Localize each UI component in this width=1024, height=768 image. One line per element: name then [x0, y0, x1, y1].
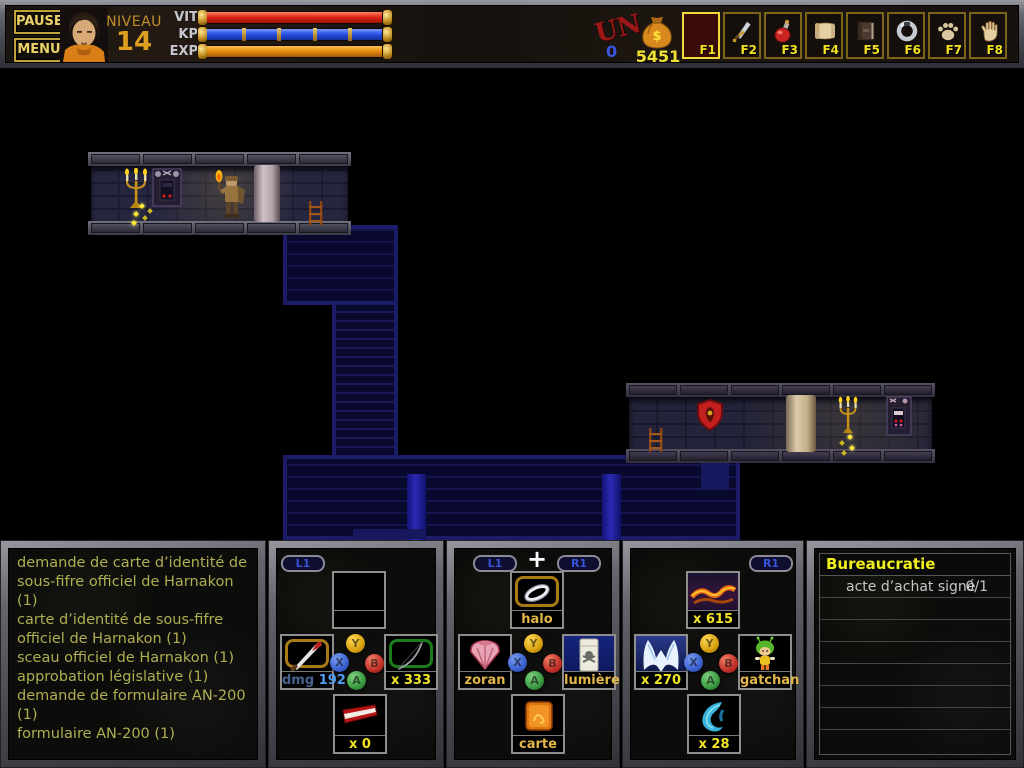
f2-key-label: F2 — [740, 43, 757, 57]
gamepad-cluster: Y X B A — [508, 634, 563, 691]
quest-title: Bureaucratie — [820, 554, 1010, 576]
weapon-slot-left[interactable]: dmg 192 — [280, 634, 334, 690]
f3-key-label: F3 — [781, 43, 798, 57]
quest-entry-empty — [820, 708, 1010, 730]
quick-slot-f8[interactable]: F8 — [969, 12, 1007, 59]
quest-items-panel: demande de carte d’identité de sous-fifr… — [0, 540, 266, 768]
quest-entry-empty — [820, 730, 1010, 752]
weapon-slot-down[interactable]: x 0 — [333, 694, 387, 754]
weapon-panel: L1 dmg 192 — [268, 540, 444, 768]
gamepad-cluster: Y X B A — [684, 634, 739, 691]
spell-name: gatchan — [740, 673, 790, 688]
quest-items-list: demande de carte d’identité de sous-fifr… — [9, 549, 257, 749]
pillar-icon — [254, 165, 280, 222]
lighter-skull-icon — [564, 636, 614, 672]
un-currency-stamp: UN — [592, 9, 644, 49]
quick-slot-f2[interactable]: F2 — [723, 12, 761, 59]
list-item: demande de carte d’identité de sous-fifr… — [17, 554, 249, 611]
item-name: zoran — [460, 673, 510, 688]
exp-row: EXP — [158, 43, 402, 60]
quick-slot-f3[interactable]: F3 — [764, 12, 802, 59]
shoulder-badge-l1: L1 — [473, 555, 517, 572]
room-bottom-right — [626, 383, 935, 463]
corridor-pillar — [602, 474, 621, 540]
spell-slot-up[interactable]: x 615 — [686, 571, 740, 629]
quest-entry-empty — [820, 642, 1010, 664]
gamepad-x-button: X — [684, 653, 703, 672]
item-slot-up[interactable]: halo — [510, 571, 564, 629]
gamepad-a-button: A — [347, 671, 366, 690]
candelabra-icon — [122, 168, 150, 216]
shoulder-badge-l1: L1 — [281, 555, 325, 572]
quick-slot-f6[interactable]: F6 — [887, 12, 925, 59]
vit-bar — [206, 11, 384, 24]
level-value: 14 — [106, 27, 162, 57]
stat-bars: VIT KP EXP — [158, 9, 402, 60]
quest-entry-empty — [820, 598, 1010, 620]
chair-icon — [306, 200, 326, 230]
seashell-icon — [460, 636, 510, 672]
wall-shield-icon — [696, 399, 724, 436]
gamepad-b-button: B — [543, 654, 562, 673]
red-bolt-icon — [335, 696, 385, 736]
gatchan-sprite-icon — [740, 636, 790, 672]
money-bag-icon: $ — [639, 16, 675, 49]
blue-flame-icon — [689, 696, 739, 736]
empty-slot — [334, 573, 384, 611]
quest-entry-empty — [820, 620, 1010, 642]
item-slot-right[interactable]: lumière — [562, 634, 616, 690]
spell-count: x 28 — [689, 737, 739, 752]
item-panel: L1 + R1 halo — [446, 540, 620, 768]
f7-key-label: F7 — [945, 43, 962, 57]
f4-key-label: F4 — [822, 43, 839, 57]
hud-topbar: PAUSE MENU NIVEAU 14 V — [0, 0, 1024, 68]
list-item: sceau officiel de Harnakon (1) — [17, 649, 249, 668]
corridor-upper-box — [283, 225, 398, 305]
spell-slot-right[interactable]: gatchan — [738, 634, 792, 690]
weapon-slot-right[interactable]: x 333 — [384, 634, 438, 690]
plus-separator: + — [527, 549, 547, 569]
ice-crystal-icon — [636, 636, 686, 672]
gamepad-b-button: B — [719, 654, 738, 673]
f6-key-label: F6 — [904, 43, 921, 57]
shrine-machine-icon — [152, 168, 182, 211]
corridor-bright-patch — [701, 460, 729, 490]
pause-button[interactable]: PAUSE — [14, 10, 64, 34]
menu-button[interactable]: MENU — [14, 38, 64, 62]
svg-text:$: $ — [652, 29, 661, 44]
quick-slot-f1[interactable]: F1 — [682, 12, 720, 59]
weapon-slot-up[interactable] — [332, 571, 386, 629]
pillar-icon — [786, 395, 816, 452]
gamepad-b-button: B — [365, 654, 384, 673]
bloody-knife-icon — [282, 636, 332, 672]
gamepad-cluster: Y X B A — [330, 634, 385, 691]
spell-panel: R1 x 615 x 270 — [622, 540, 804, 768]
f8-key-label: F8 — [986, 43, 1003, 57]
corridor-vertical-shaft — [332, 301, 398, 459]
arrow-count: x 333 — [386, 673, 436, 688]
kp-bar — [206, 28, 384, 41]
list-item: formulaire AN-200 (1) — [17, 725, 249, 744]
quest-entry-progress: 0/1 — [965, 576, 988, 598]
quick-slot-f4[interactable]: F4 — [805, 12, 843, 59]
quick-slots: F1 F2 — [682, 12, 1010, 59]
gamepad-y-button: Y — [700, 634, 719, 653]
candelabra-icon — [836, 396, 860, 440]
corridor-horizontal — [283, 455, 740, 540]
list-item: carte d’identité de sous-fifre officiel … — [17, 611, 249, 649]
item-name: lumière — [564, 673, 614, 688]
quick-slot-f5[interactable]: F5 — [846, 12, 884, 59]
list-item: demande de formulaire AN-200 (1) — [17, 687, 249, 725]
exp-label: EXP — [158, 44, 198, 59]
quest-entry-empty — [820, 686, 1010, 708]
un-currency-value: 0 — [606, 42, 617, 61]
spell-slot-left[interactable]: x 270 — [634, 634, 688, 690]
vit-label: VIT — [158, 10, 198, 25]
item-slot-down[interactable]: carte — [511, 694, 565, 754]
gamepad-a-button: A — [525, 671, 544, 690]
corridor-floor-patch — [353, 529, 425, 539]
item-name: halo — [512, 612, 562, 627]
quest-entry-empty — [820, 664, 1010, 686]
gold-amount: 5451 — [630, 47, 686, 66]
fire-wave-icon — [688, 573, 738, 611]
room-top-left — [88, 152, 351, 235]
map-card-icon — [513, 696, 563, 736]
gamepad-y-button: Y — [524, 634, 543, 653]
shrine-machine-icon — [886, 396, 912, 440]
item-name: carte — [513, 737, 563, 752]
kp-label: KP — [158, 27, 198, 42]
gamepad-y-button: Y — [346, 634, 365, 653]
spell-count: x 615 — [688, 612, 738, 627]
spell-slot-down[interactable]: x 28 — [687, 694, 741, 754]
dmg-label: dmg — [282, 673, 314, 688]
bolt-count: x 0 — [335, 737, 385, 752]
spell-count: x 270 — [636, 673, 686, 688]
quest-log-panel: Bureaucratie acte d’achat signé 0/1 — [806, 540, 1024, 768]
quest-entry-text: acte d’achat signé — [846, 579, 975, 595]
vit-row: VIT — [158, 9, 402, 26]
kp-row: KP — [158, 26, 402, 43]
gamepad-x-button: X — [508, 653, 527, 672]
quest-entry: acte d’achat signé 0/1 — [820, 576, 1010, 598]
gamepad-x-button: X — [330, 653, 349, 672]
player-character-sprite — [212, 170, 250, 228]
shoulder-badge-r1: R1 — [557, 555, 601, 572]
ladder-icon — [646, 427, 666, 457]
list-item: approbation législative (1) — [17, 668, 249, 687]
gamepad-a-button: A — [701, 671, 720, 690]
bow-icon — [386, 636, 436, 672]
f1-key-label: F1 — [699, 43, 716, 57]
game-screen: PAUSE MENU NIVEAU 14 V — [0, 0, 1024, 768]
f5-key-label: F5 — [863, 43, 880, 57]
character-portrait — [60, 7, 108, 62]
exp-bar — [206, 45, 384, 58]
quick-slot-f7[interactable]: F7 — [928, 12, 966, 59]
halo-ring-icon — [512, 573, 562, 611]
shoulder-badge-r1: R1 — [749, 555, 793, 572]
item-slot-left[interactable]: zoran — [458, 634, 512, 690]
